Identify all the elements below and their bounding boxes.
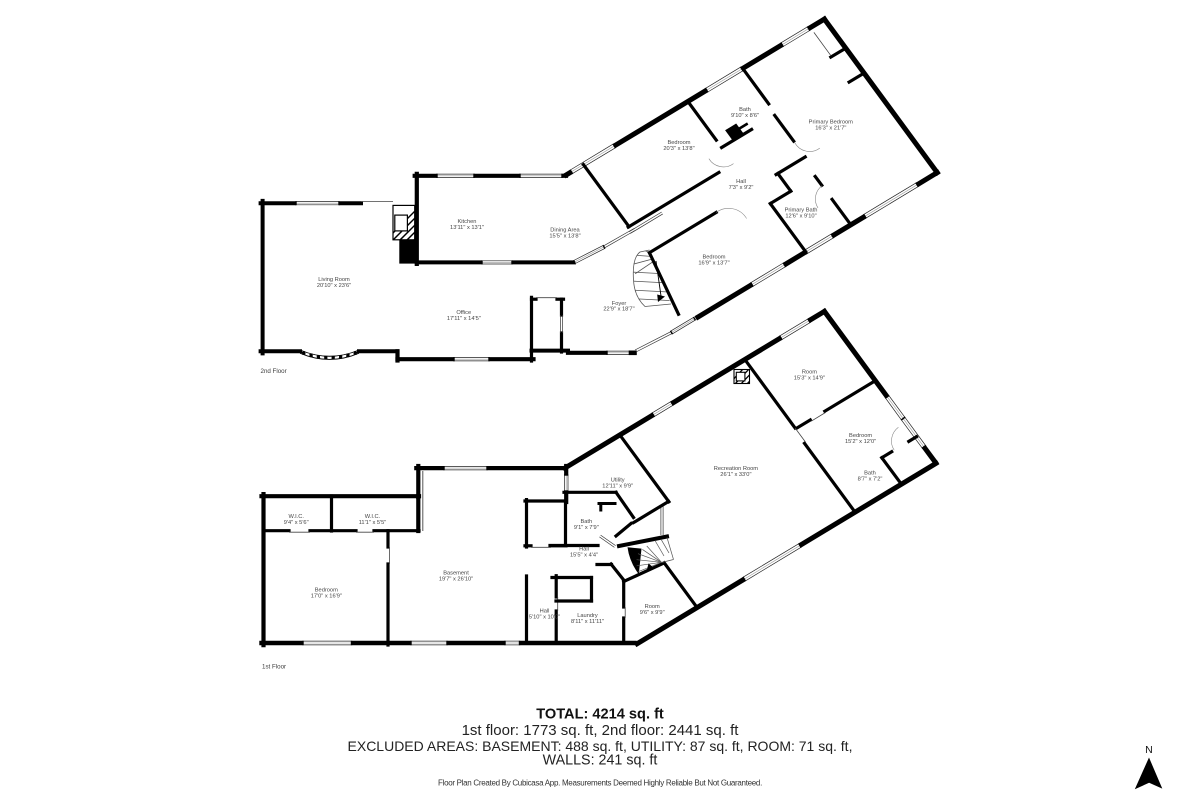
svg-text:8'11" x 11'11": 8'11" x 11'11": [571, 619, 604, 625]
svg-text:16'3" x 21'7": 16'3" x 21'7": [815, 126, 846, 132]
svg-text:12'11" x 9'9": 12'11" x 9'9": [602, 483, 633, 489]
svg-text:9'10" x 8'6": 9'10" x 8'6": [731, 113, 759, 119]
svg-text:15'3" x 14'9": 15'3" x 14'9": [794, 376, 825, 382]
svg-text:WALLS: 241 sq. ft: WALLS: 241 sq. ft: [543, 753, 658, 769]
svg-text:13'11" x 13'1": 13'11" x 13'1": [450, 225, 484, 231]
svg-text:TOTAL: 4214 sq. ft: TOTAL: 4214 sq. ft: [536, 707, 664, 723]
svg-text:7'3" x 9'2": 7'3" x 9'2": [729, 185, 754, 191]
svg-text:22'9" x 18'7": 22'9" x 18'7": [603, 307, 634, 313]
svg-text:15'2" x 12'0": 15'2" x 12'0": [845, 439, 876, 445]
svg-text:15'5" x 4'4": 15'5" x 4'4": [570, 553, 598, 559]
svg-text:9'4" x 5'6": 9'4" x 5'6": [284, 520, 309, 526]
svg-text:9'1" x 7'9": 9'1" x 7'9": [574, 525, 599, 531]
svg-text:26'1" x 33'0": 26'1" x 33'0": [720, 472, 751, 478]
svg-text:1st floor: 1773 sq. ft, 2nd fl: 1st floor: 1773 sq. ft, 2nd floor: 2441 …: [462, 722, 740, 739]
svg-text:19'7" x 26'10": 19'7" x 26'10": [439, 576, 473, 582]
svg-text:15'5" x 13'8": 15'5" x 13'8": [549, 233, 580, 239]
svg-text:17'11" x 14'5": 17'11" x 14'5": [447, 316, 481, 322]
svg-text:5'10" x 10'0": 5'10" x 10'0": [529, 615, 560, 621]
svg-text:20'3" x 13'8": 20'3" x 13'8": [663, 146, 694, 152]
svg-text:9'6" x 9'9": 9'6" x 9'9": [640, 610, 665, 616]
svg-text:20'10" x 23'6": 20'10" x 23'6": [317, 283, 351, 289]
svg-text:2nd Floor: 2nd Floor: [261, 368, 287, 375]
svg-text:8'7" x 7'2": 8'7" x 7'2": [858, 477, 883, 483]
svg-text:12'6" x 9'10": 12'6" x 9'10": [785, 214, 816, 220]
svg-text:Floor Plan Created By Cubicasa: Floor Plan Created By Cubicasa App. Meas…: [438, 779, 762, 788]
svg-text:N: N: [1145, 744, 1153, 756]
svg-text:1st Floor: 1st Floor: [262, 664, 286, 671]
svg-text:17'0" x 16'9": 17'0" x 16'9": [311, 594, 342, 600]
svg-text:11'1" x 5'5": 11'1" x 5'5": [359, 520, 387, 526]
svg-text:16'9" x 13'7": 16'9" x 13'7": [698, 260, 729, 266]
